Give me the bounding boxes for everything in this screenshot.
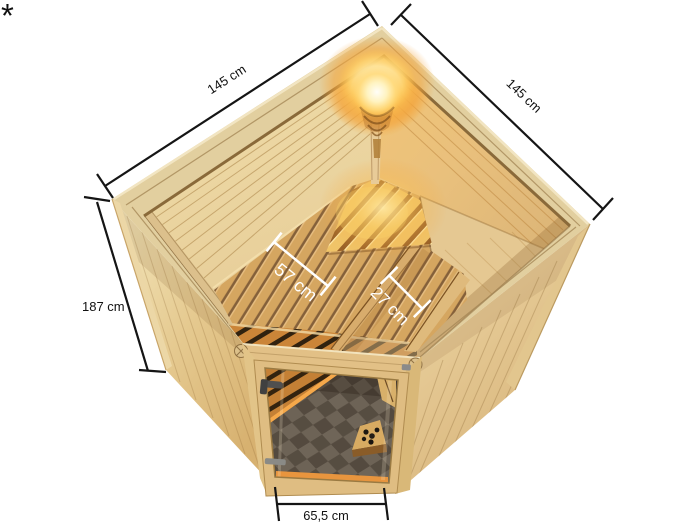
svg-text:65,5 cm: 65,5 cm — [303, 508, 349, 523]
svg-text:*: * — [1, 0, 14, 34]
svg-text:187 cm: 187 cm — [82, 299, 125, 314]
